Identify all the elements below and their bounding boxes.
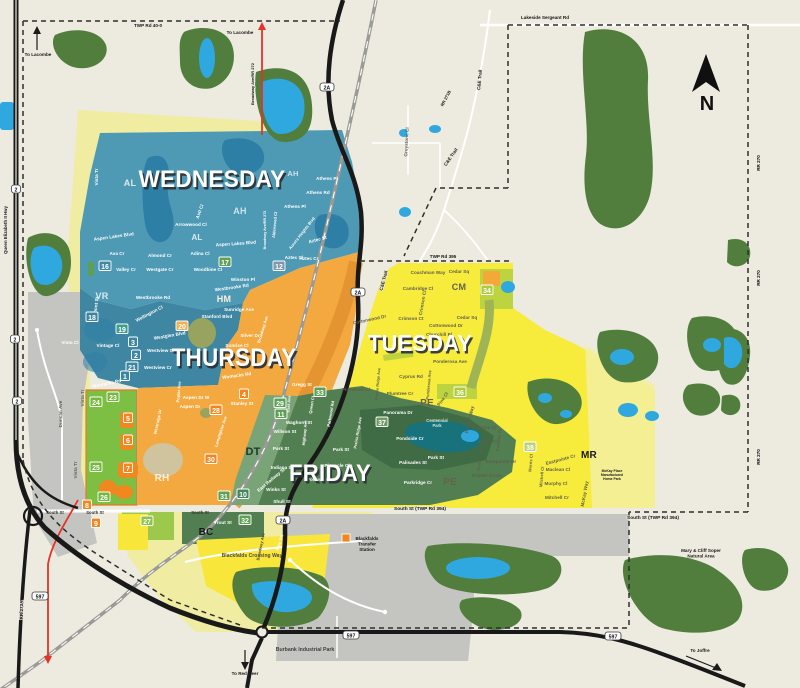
zone-badge: 20: [176, 321, 188, 331]
area-code: AL: [191, 233, 202, 242]
highway-shield-number: 2: [15, 188, 18, 194]
pond: [199, 38, 215, 78]
street-label: Westgate Cr: [146, 267, 173, 272]
road-label: Lakeside Sergeant Rd: [521, 15, 569, 20]
street-label: Blackfalds Crossing Way: [222, 553, 283, 559]
street-label: Vintage Cl: [97, 343, 120, 348]
zone-badge: 27: [141, 516, 153, 526]
zone-badge-number: 1: [123, 374, 127, 381]
road-label: TWP Rd 40-0: [134, 23, 162, 28]
zone-badge: 29: [274, 398, 286, 408]
zone-badge: 32: [239, 515, 251, 525]
street-label: Panorama Dr: [383, 410, 412, 415]
school-patch: [483, 271, 500, 286]
street-label: Plumtree Cr: [387, 391, 414, 396]
area-code: PE: [443, 477, 457, 488]
area-code: AL: [124, 178, 137, 188]
direction-label: To Lacombe: [227, 30, 254, 35]
street-label: Gregg St: [292, 382, 312, 387]
street-label: Pondside Cr: [396, 436, 424, 441]
street-label: Shull St: [273, 499, 291, 504]
zone-badge-number: 25: [92, 465, 100, 472]
zone-badge: 10: [237, 489, 249, 499]
pond: [501, 281, 515, 293]
zone-badge-number: 8: [85, 503, 89, 510]
area-code: AH: [233, 206, 246, 216]
highway-shield: 597: [343, 631, 359, 640]
street-label: Cottonwood Dr: [429, 323, 463, 328]
zone-badge-number: 18: [88, 315, 96, 322]
poi-label: Burbank Industrial Park: [276, 647, 335, 653]
road-label: RR 270: [756, 449, 761, 465]
road-end-dot: [288, 558, 292, 562]
street-label: Valley Cr: [116, 267, 136, 272]
highway-shield: 2A: [276, 516, 290, 525]
zone-badge-number: 34: [483, 288, 491, 295]
area-code: VR: [96, 291, 109, 301]
street-label: Ava Cr: [110, 251, 125, 256]
street-label: Cyprus Rd: [399, 374, 423, 379]
road-label: RR 273A: [19, 600, 24, 620]
road-label: RR 270: [756, 270, 761, 286]
highway-shield-number: 2: [14, 338, 17, 344]
highway-shield: 597: [32, 592, 48, 601]
street-label: Athens Pl: [316, 176, 338, 181]
area-code: BC: [199, 527, 214, 538]
street-label: Cambridge Cl: [403, 286, 433, 291]
street-label: Park St: [273, 446, 290, 451]
zone-badge: 8: [83, 500, 92, 510]
zone-badge: 7: [124, 463, 133, 473]
street-label: Almond Cr: [148, 253, 172, 258]
street-label: Adina Cl: [190, 251, 209, 256]
highway-shield-number: 2A: [280, 519, 287, 525]
zone-badge: 6: [124, 435, 133, 445]
street-label: Park St: [428, 455, 445, 460]
blackfalds-zone-map: N Vista TrVista TrVista TrAspen Lakes Bl…: [0, 0, 800, 688]
highway-shield-number: 2A: [324, 86, 331, 92]
highway-shield-number: 597: [609, 635, 618, 641]
acreage-patch: [115, 485, 133, 499]
street-label: Murphy Cl: [545, 481, 568, 486]
pond: [399, 207, 411, 217]
street-label: Mitchell Cr: [545, 495, 569, 500]
street-label: Willson St: [274, 429, 297, 434]
zone-badge-number: 30: [207, 457, 215, 464]
street-label: Coachman Way: [411, 270, 446, 275]
street-label: Cedar Sq: [449, 269, 470, 274]
zone-badge: 24: [90, 397, 102, 407]
street-label: Aspen Dr W: [183, 395, 210, 400]
day-zone-label: TUESDAY: [368, 330, 472, 356]
direction-label: To Lacombe: [25, 52, 52, 57]
poi-label: McKay PlaceManufacturedHome Park: [601, 469, 623, 481]
zone-badge: 21: [126, 362, 138, 372]
pond: [618, 403, 638, 417]
zone-badge: 30: [205, 454, 217, 464]
direction-label: To Joffre: [690, 648, 710, 653]
highway-shield: 2: [11, 335, 20, 344]
compass-n: N: [700, 93, 714, 115]
highway-shield: 2: [13, 397, 22, 406]
forest-patch: [583, 29, 653, 228]
street-label: Athens Rd: [306, 190, 330, 195]
zone-badge-number: 29: [276, 401, 284, 408]
road-label: South St (TWP Rd 394): [627, 515, 679, 521]
road-label: TWP Rd 395: [430, 254, 457, 259]
zone-badge: 9: [92, 518, 101, 528]
street-label: Piper Cl: [479, 439, 497, 444]
zone-badge-number: 23: [109, 395, 117, 402]
street-label: Eastpointe Dr: [486, 459, 517, 464]
street-label: Maclean Cl: [546, 467, 571, 472]
forest-patch: [721, 395, 740, 415]
zone-badge-number: 36: [456, 390, 464, 397]
pond: [560, 410, 572, 418]
pond: [0, 102, 14, 130]
street-label: Vista Tr: [73, 461, 78, 478]
street-label: Vista Tr: [80, 389, 85, 406]
transfer-station-icon: [342, 534, 350, 542]
zone-badge: 31: [218, 491, 230, 501]
street-label: South St: [46, 510, 64, 515]
highway-shield-number: 597: [347, 634, 356, 640]
street-label: Vista Cl: [61, 340, 78, 345]
zone-badge: 12: [273, 261, 285, 271]
street-label: Winston Pl: [231, 277, 255, 282]
highway-shield: 2A: [351, 288, 365, 297]
zone-badge-number: 3: [131, 340, 135, 347]
zone-badge-number: 27: [143, 519, 151, 526]
zone-badge: 11: [275, 409, 287, 419]
street-label: Stanley St: [231, 401, 254, 406]
pond: [645, 411, 659, 421]
zone-badge-number: 33: [316, 390, 324, 397]
street-label: Westbrooke Rd: [136, 295, 170, 300]
street-label: Trout St: [214, 520, 232, 525]
map-canvas: N Vista TrVista TrVista TrAspen Lakes Bl…: [0, 0, 800, 688]
pond: [429, 125, 441, 133]
highway-shield: 2: [12, 185, 21, 194]
street-label: Cedar Sq: [457, 315, 478, 320]
street-label: Stanford Blvd: [202, 314, 233, 319]
area-code: AH: [287, 169, 298, 178]
day-zone-label: WEDNESDAY: [139, 166, 286, 193]
zone-badge-number: 37: [378, 420, 386, 427]
zone-badge-number: 26: [100, 495, 108, 502]
road-label: Broadway Ave/RR 272: [250, 62, 255, 105]
pond: [703, 338, 721, 352]
street-label: Ponderosa Ave: [433, 359, 467, 364]
zone-badge: 16: [99, 261, 111, 271]
highway-shield-number: 2: [16, 400, 19, 406]
zone-badge-number: 11: [277, 412, 285, 419]
area-code: RH: [155, 473, 170, 484]
area-code: CM: [452, 282, 466, 292]
highway-shield: 597: [605, 632, 621, 641]
street-label: Woodbine Cl: [194, 267, 223, 272]
zone-badge-number: 28: [212, 408, 220, 415]
street-label: Waghorn St: [286, 420, 313, 425]
street-label: Palisades St: [399, 460, 427, 465]
street-label: Arrowwood Cl: [175, 222, 207, 227]
zone-badge: 5: [124, 413, 133, 423]
highway-shield: 2A: [320, 83, 334, 92]
zone-badge: 23: [107, 392, 119, 402]
zone-badge-number: 9: [94, 521, 98, 528]
road-end-dot: [35, 328, 39, 332]
street-label: Pinewood Cl: [342, 387, 370, 392]
zone-badge-number: 24: [92, 400, 100, 407]
street-label: Palmer Circle: [472, 473, 502, 478]
zone-badge-number: 12: [275, 264, 283, 271]
street-label: Aspen Dr: [180, 404, 201, 409]
street-label: Crimson Ct: [398, 316, 424, 321]
highway-shield-number: 597: [36, 595, 45, 601]
street-label: Winks St: [266, 487, 286, 492]
zone-badge-number: 4: [242, 392, 246, 399]
day-zone-label: FRIDAY: [289, 460, 371, 487]
zone-badge: 28: [210, 405, 222, 415]
road-end-dot: [383, 610, 387, 614]
street-label: South St: [86, 510, 104, 515]
zone-badge-number: 20: [178, 324, 186, 331]
direction-label: To Red Deer: [232, 671, 259, 676]
zone-badge-number: 21: [128, 365, 136, 372]
lake: [83, 352, 107, 372]
street-label: Duncan Ave: [58, 400, 63, 427]
pond: [538, 393, 552, 403]
street-label: Sunridge Ave: [224, 307, 254, 312]
pond: [446, 557, 510, 579]
zone-badge: 37: [376, 417, 388, 427]
zone-badge-number: 38: [526, 445, 534, 452]
zone-badge-number: 6: [126, 438, 130, 445]
zone-badge-number: 32: [241, 518, 249, 525]
park-patch: [88, 262, 94, 276]
highway-shield-number: 2A: [355, 291, 362, 297]
zone-badge: 34: [481, 285, 493, 295]
road-label: South St (TWP Rd 394): [394, 506, 446, 512]
area-code: DT: [245, 446, 260, 458]
road-label: RR 270: [756, 155, 761, 171]
day-zone-label: THURSDAY: [172, 344, 297, 372]
road-label: Queen Elizabeth II Hwy: [3, 205, 8, 254]
zone-badge: 4: [240, 389, 249, 399]
zone-badge-number: 19: [118, 327, 126, 334]
zone-badge: 17: [219, 257, 231, 267]
area-code: PE: [420, 398, 434, 409]
zone-badge: 1: [121, 371, 130, 381]
zone-badge-number: 2: [134, 353, 138, 360]
zone-badge: 38: [524, 442, 536, 452]
street-label: Athens Pl: [284, 204, 306, 209]
zone-badge: 19: [116, 324, 128, 334]
zone-badge: 3: [129, 337, 138, 347]
zone-badge-number: 16: [101, 264, 109, 271]
zone-badge-number: 10: [239, 492, 247, 499]
street-label: Westview Cr: [144, 365, 172, 370]
zone-badge: 26: [98, 492, 110, 502]
street-label: Vista Tr: [94, 168, 99, 185]
zone-badge: 18: [86, 312, 98, 322]
street-label: Pinetree Cl: [472, 425, 497, 430]
park-patch: [143, 443, 183, 477]
zone-badge: 36: [454, 387, 466, 397]
zone-badge: 33: [314, 387, 326, 397]
area-code: MR: [581, 450, 598, 461]
zone-badge-number: 31: [220, 494, 228, 501]
street-label: Broadway Ave/RR 272: [263, 211, 267, 250]
street-label: Park St: [333, 447, 350, 452]
street-label: Aztec Cl: [285, 255, 304, 260]
zone-badge-number: 5: [126, 416, 130, 423]
zone-badge: 25: [90, 462, 102, 472]
zone-badge-number: 7: [126, 466, 130, 473]
area-code: HM: [217, 294, 231, 304]
zone-badge: 2: [132, 350, 141, 360]
street-label: Parkridge Cr: [404, 480, 432, 485]
pond: [610, 349, 634, 365]
street-label: South St: [191, 510, 209, 515]
zone-badge-number: 17: [221, 260, 229, 267]
